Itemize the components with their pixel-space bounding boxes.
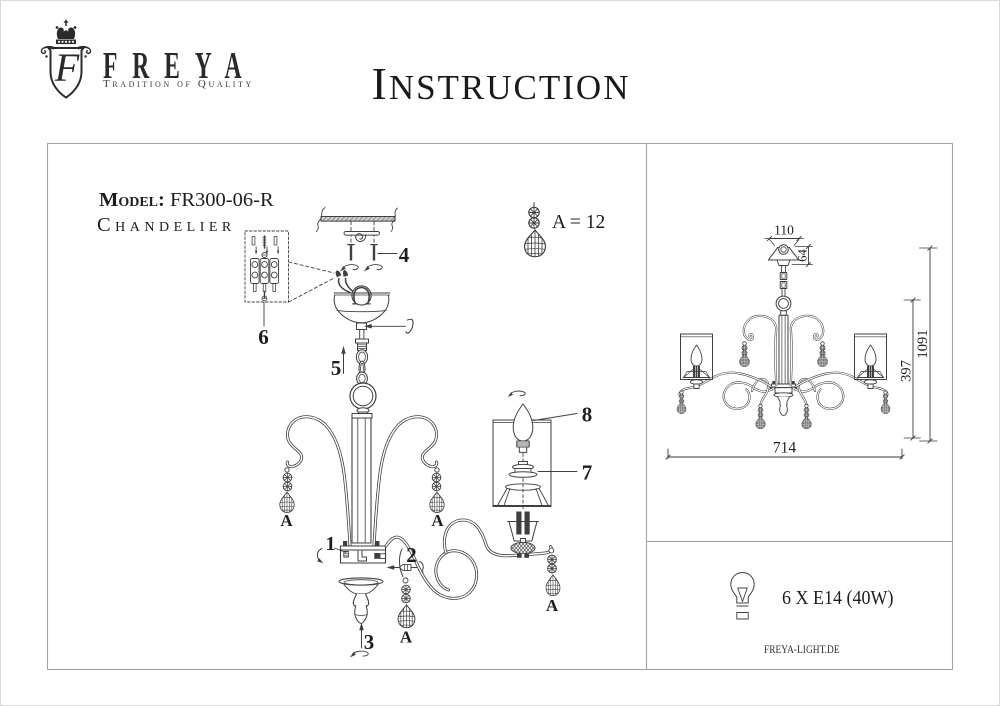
svg-text:7: 7 — [582, 461, 593, 485]
svg-text:A: A — [400, 628, 413, 647]
svg-text:397: 397 — [899, 360, 915, 382]
svg-text:A: A — [431, 511, 444, 530]
svg-text:8: 8 — [582, 403, 593, 427]
svg-text:1091: 1091 — [915, 330, 931, 359]
svg-text:6: 6 — [258, 325, 269, 349]
svg-text:A: A — [280, 511, 293, 530]
svg-text:3: 3 — [364, 630, 375, 654]
svg-text:1: 1 — [326, 533, 336, 555]
svg-text:714: 714 — [773, 440, 797, 457]
svg-text:2: 2 — [406, 543, 417, 567]
svg-text:4: 4 — [399, 243, 410, 267]
svg-text:5: 5 — [331, 356, 342, 380]
svg-text:110: 110 — [774, 223, 794, 238]
svg-text:64: 64 — [796, 249, 810, 262]
svg-text:A: A — [546, 596, 559, 615]
